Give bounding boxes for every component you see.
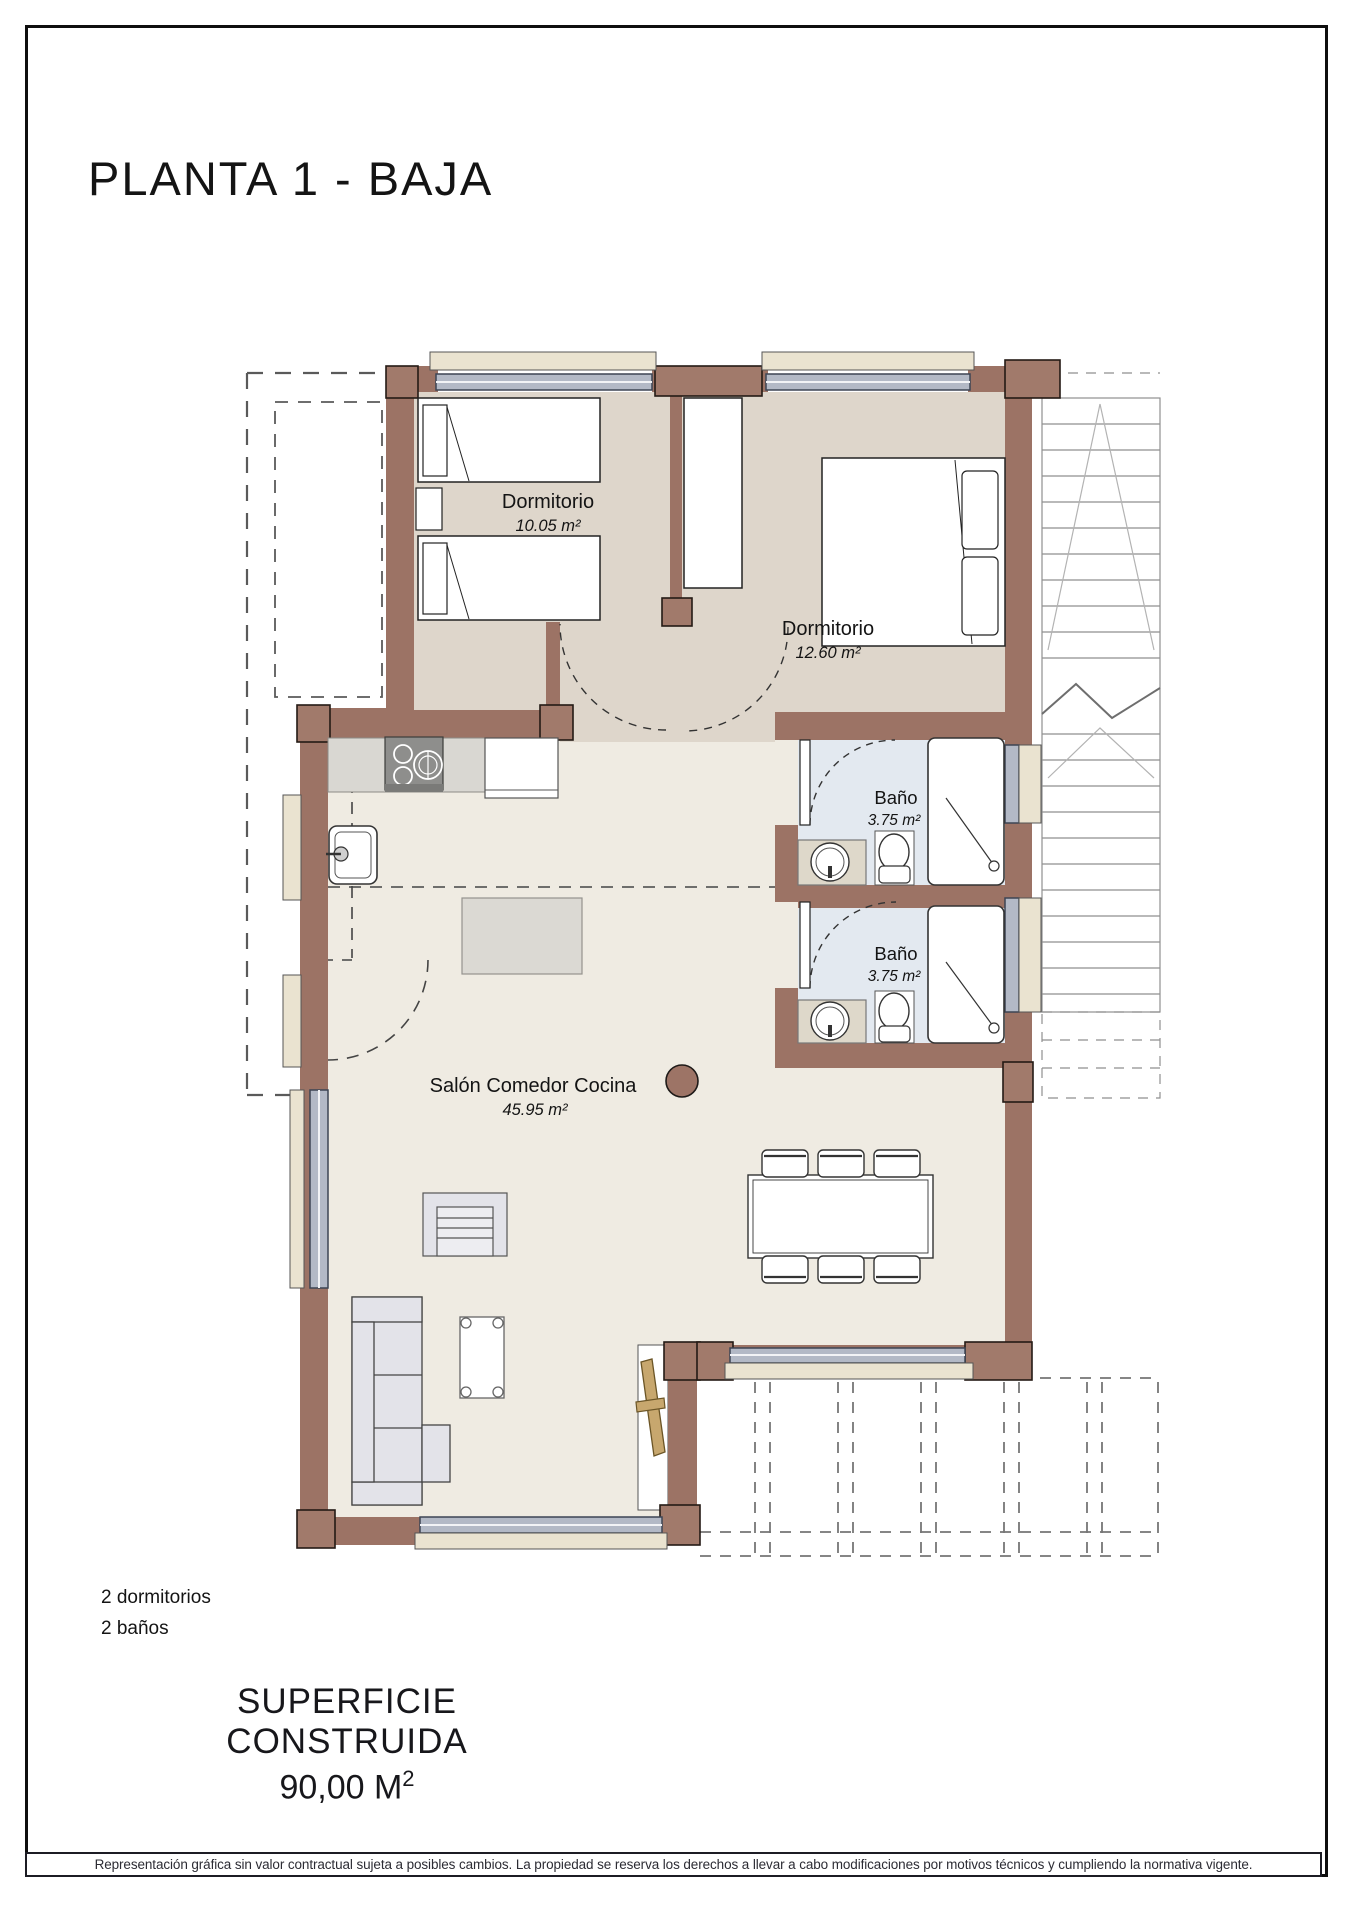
- bedroom2-wardrobe: [684, 398, 742, 588]
- dining-set: [748, 1150, 933, 1283]
- living-area: 45.95 m²: [502, 1101, 568, 1119]
- bedrooms-count: 2 dormitorios: [101, 1582, 211, 1613]
- bath1-window-sill: [1019, 745, 1041, 823]
- bedroom1-label: Dormitorio: [502, 491, 594, 513]
- bath1-label: Baño: [874, 787, 917, 808]
- bath2-window-sill: [1019, 898, 1041, 1012]
- coffee-table: [460, 1317, 504, 1398]
- dining-window-sill: [725, 1363, 973, 1379]
- bathrooms-count: 2 baños: [101, 1613, 211, 1644]
- bath1-door-leaf: [800, 740, 810, 825]
- tv-unit: [423, 1193, 507, 1256]
- floor-plan-page: PLANTA 1 - BAJA: [0, 0, 1353, 1919]
- kitchen-window-sill: [283, 795, 301, 900]
- living-label: Salón Comedor Cocina: [430, 1075, 638, 1097]
- bath2-area: 3.75 m²: [868, 968, 921, 985]
- bedroom1-window-sill: [430, 352, 656, 370]
- bedroom1-nightstand: [416, 488, 442, 530]
- porch-pergola-dashed: [700, 1378, 1160, 1556]
- dining-table: [748, 1175, 933, 1258]
- bath2-label: Baño: [874, 943, 917, 964]
- bedroom1-area: 10.05 m²: [515, 517, 581, 535]
- bedroom2-label: Dormitorio: [782, 618, 874, 640]
- bedroom1-bed-1-pillow: [423, 405, 447, 476]
- bath2-shower: [928, 906, 1004, 1043]
- hallway-floor: [560, 620, 775, 742]
- bedroom2-pillow-2: [962, 557, 998, 635]
- kitchen-island: [462, 898, 582, 974]
- disclaimer-text: Representación gráfica sin valor contrac…: [95, 1857, 1253, 1872]
- feature-summary: 2 dormitorios 2 baños: [101, 1582, 211, 1644]
- structural-column: [666, 1065, 698, 1097]
- bedroom2-pillow-1: [962, 471, 998, 549]
- bedroom2-window-sill: [762, 352, 974, 370]
- living-south-window-sill: [415, 1533, 667, 1549]
- built-area-block: SUPERFICIE CONSTRUIDA 90,00 M2: [117, 1682, 577, 1807]
- living-window-sill: [290, 1090, 304, 1288]
- staircase: [1032, 373, 1160, 1098]
- bath2-window: [1005, 898, 1019, 1012]
- bedroom2-area: 12.60 m²: [795, 644, 861, 662]
- bedroom1-bed-2-pillow: [423, 543, 447, 614]
- built-area-label: SUPERFICIE CONSTRUIDA: [117, 1682, 577, 1762]
- kitchen-cabinet: [485, 738, 558, 798]
- disclaimer-bar: Representación gráfica sin valor contrac…: [25, 1852, 1322, 1877]
- bath1-window: [1005, 745, 1019, 823]
- built-area-value: 90,00 M2: [117, 1766, 577, 1807]
- bath1-area: 3.75 m²: [868, 812, 921, 829]
- bath2-door-leaf: [800, 902, 810, 988]
- west-window-sill: [283, 975, 301, 1067]
